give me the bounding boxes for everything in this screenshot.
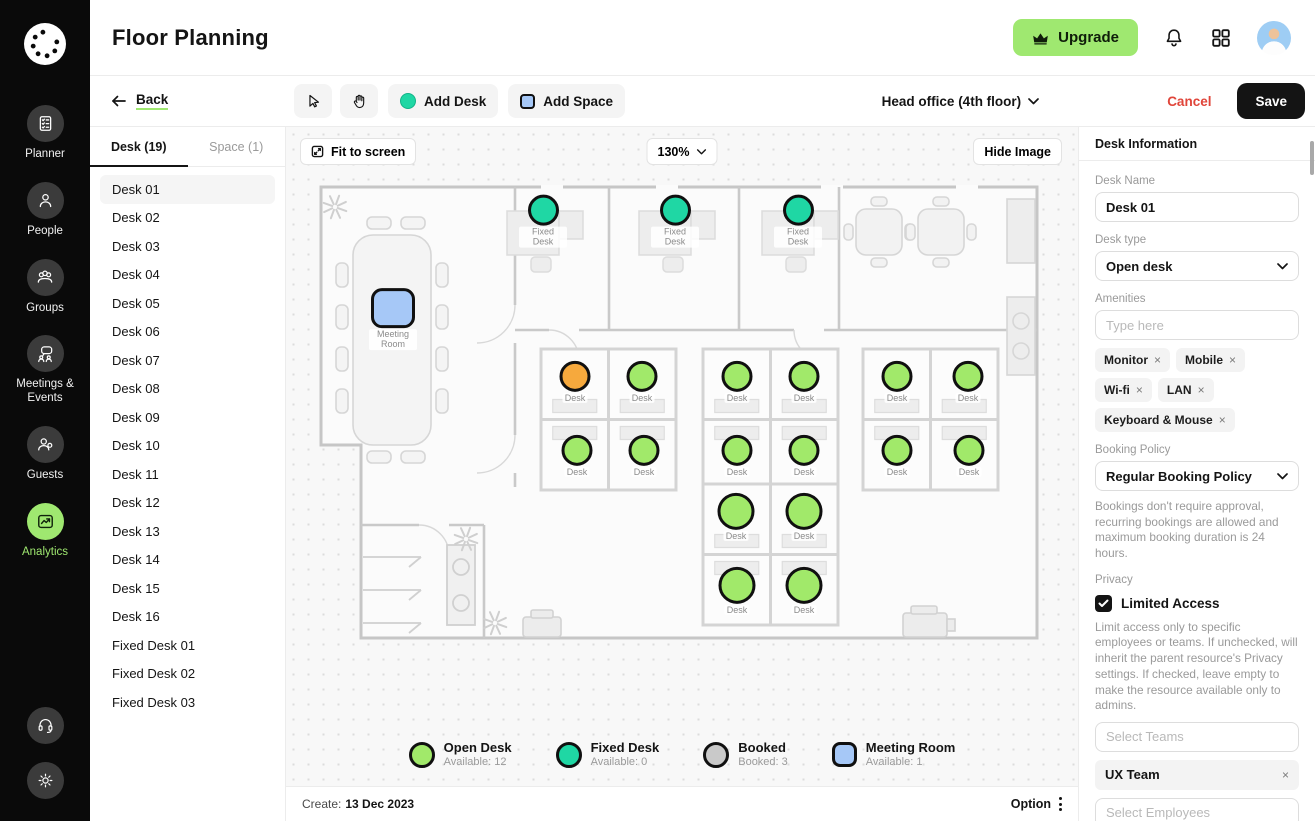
desk-list-item[interactable]: Desk 03 <box>100 232 275 261</box>
legend-swatch <box>409 742 435 768</box>
marker-label: Desk <box>885 393 910 403</box>
desk-list-item[interactable]: Desk 09 <box>100 403 275 432</box>
app-header: Floor Planning Upgrade <box>90 0 1315 76</box>
remove-tag-icon[interactable]: × <box>1229 354 1236 366</box>
desk-list-item[interactable]: Desk 14 <box>100 546 275 575</box>
marker-label: Fixed Desk <box>774 227 822 248</box>
legend: Open DeskAvailable: 12Fixed DeskAvailabl… <box>286 740 1078 769</box>
meeting-desk-marker[interactable]: Meeting Room <box>369 288 417 350</box>
booked-desk-marker[interactable]: Desk <box>786 493 823 541</box>
legend-name: Fixed Desk <box>591 740 660 756</box>
chevron-down-icon <box>1277 263 1288 270</box>
amenity-tag-label: Wi-fi <box>1104 383 1130 397</box>
remove-tag-icon[interactable]: × <box>1154 354 1161 366</box>
marker-dot <box>783 195 814 226</box>
limited-access-checkbox[interactable]: Limited Access <box>1095 595 1299 612</box>
legend-sub: Available: 12 <box>444 756 512 769</box>
sidebar-item-label: Meetings & Events <box>9 378 81 406</box>
open-desk-marker[interactable]: Desk <box>882 361 913 403</box>
sidebar: Planner People Groups <box>0 0 90 821</box>
select-cursor-tool-button[interactable] <box>294 84 332 118</box>
option-menu-button[interactable]: Option <box>1011 797 1062 811</box>
user-avatar[interactable] <box>1257 21 1291 55</box>
desk-name-label: Desk Name <box>1095 175 1299 187</box>
sidebar-nav: Planner People Groups <box>0 95 90 570</box>
amenity-tag-label: Monitor <box>1104 353 1148 367</box>
legend-name: Open Desk <box>444 740 512 756</box>
main-area: Floor Planning Upgrade <box>90 0 1315 821</box>
remove-team-icon[interactable]: × <box>1282 769 1289 781</box>
desk-list-item[interactable]: Desk 12 <box>100 489 275 518</box>
legend-item: Meeting RoomAvailable: 1 <box>832 740 956 769</box>
marker-dot <box>627 361 658 392</box>
fit-to-screen-button[interactable]: Fit to screen <box>300 138 416 165</box>
desk-list-item[interactable]: Desk 16 <box>100 603 275 632</box>
legend-item: Open DeskAvailable: 12 <box>409 740 512 769</box>
booked-avatar <box>786 493 823 530</box>
chevron-down-icon <box>1028 98 1039 105</box>
marker-dot <box>882 361 913 392</box>
legend-name: Meeting Room <box>866 740 956 756</box>
desk-dot-icon <box>400 93 416 109</box>
legend-swatch <box>556 742 582 768</box>
create-date-label: Create: <box>302 797 341 811</box>
booked-desk-marker[interactable]: Desk <box>786 567 823 615</box>
marker-label: Desk <box>632 467 657 477</box>
open-desk-marker[interactable]: Desk <box>722 435 753 477</box>
save-button[interactable]: Save <box>1237 83 1305 119</box>
select-employees-input[interactable] <box>1095 798 1299 821</box>
legend-name: Booked <box>738 740 788 756</box>
zoom-value: 130% <box>658 145 690 159</box>
team-name: UX Team <box>1105 767 1160 782</box>
desk-name-input[interactable] <box>1095 192 1299 222</box>
fixed-desk-marker[interactable]: Fixed Desk <box>774 195 822 248</box>
privacy-label: Privacy <box>1095 574 1299 586</box>
meetings-icon <box>27 335 64 372</box>
amenities-label: Amenities <box>1095 293 1299 305</box>
checkbox-checked-icon <box>1095 595 1112 612</box>
desk-list-item[interactable]: Desk 10 <box>100 432 275 461</box>
marker-layer: Fixed DeskFixed DeskFixed DeskMeeting Ro… <box>286 127 1078 821</box>
booking-policy-label: Booking Policy <box>1095 444 1299 456</box>
marker-label: Meeting Room <box>369 329 417 350</box>
upgrade-button[interactable]: Upgrade <box>1013 19 1138 56</box>
zoom-level-dropdown[interactable]: 130% <box>647 138 718 165</box>
legend-item: BookedBooked: 3 <box>703 740 788 769</box>
page-title: Floor Planning <box>112 25 269 51</box>
open-desk-marker[interactable]: Desk <box>954 435 985 477</box>
space-square-icon <box>520 94 535 109</box>
desk-list-item[interactable]: Desk 15 <box>100 574 275 603</box>
marker-dot <box>371 288 415 328</box>
desk-list: Desk 01Desk 02Desk 03Desk 04Desk 05Desk … <box>90 167 285 725</box>
fixed-desk-marker[interactable]: Fixed Desk <box>651 195 699 248</box>
marker-dot <box>660 195 691 226</box>
legend-item: Fixed DeskAvailable: 0 <box>556 740 660 769</box>
floorplan-canvas[interactable]: Fit to screen 130% Hide Image <box>286 127 1078 821</box>
canvas-footer: Create: 13 Dec 2023 Option <box>286 786 1078 821</box>
desk-type-label: Desk type <box>1095 234 1299 246</box>
amenities-input[interactable] <box>1095 310 1299 340</box>
sidebar-item-label: Guests <box>27 469 63 483</box>
marker-dot <box>953 361 984 392</box>
amenity-tag: Wi-fi× <box>1095 378 1152 402</box>
pan-hand-tool-button[interactable] <box>340 84 378 118</box>
marker-dot <box>722 435 753 466</box>
legend-text: Fixed DeskAvailable: 0 <box>591 740 660 769</box>
desk-list-item[interactable]: Desk 01 <box>100 175 275 204</box>
remove-tag-icon[interactable]: × <box>1136 384 1143 396</box>
add-space-button[interactable]: Add Space <box>508 84 625 118</box>
create-date-value: 13 Dec 2023 <box>345 797 414 811</box>
booked-desk-marker[interactable]: Desk <box>718 493 755 541</box>
desk-list-item[interactable]: Fixed Desk 03 <box>100 688 275 717</box>
sidebar-item-meetings-events[interactable]: Meetings & Events <box>0 325 90 416</box>
panel-body: Desk Name Desk type Open desk Amenities … <box>1079 161 1315 821</box>
add-desk-button[interactable]: Add Desk <box>388 84 498 118</box>
people-icon <box>27 182 64 219</box>
marker-dot <box>722 361 753 392</box>
legend-text: Meeting RoomAvailable: 1 <box>866 740 956 769</box>
header-actions: Upgrade <box>1013 19 1291 56</box>
remove-tag-icon[interactable]: × <box>1219 414 1226 426</box>
sidebar-item-planner[interactable]: Planner <box>0 95 90 172</box>
selected-desk-marker[interactable]: Desk <box>560 361 591 403</box>
notifications-bell-icon[interactable] <box>1163 27 1185 49</box>
desk-list-item[interactable]: Desk 02 <box>100 204 275 233</box>
marker-label: Desk <box>792 467 817 477</box>
open-desk-marker[interactable]: Desk <box>722 361 753 403</box>
chevron-down-icon <box>696 149 706 155</box>
marker-label: Desk <box>725 393 750 403</box>
limited-access-label: Limited Access <box>1121 596 1220 611</box>
marker-label: Desk <box>885 467 910 477</box>
marker-dot <box>560 361 591 392</box>
legend-text: BookedBooked: 3 <box>738 740 788 769</box>
legend-sub: Booked: 3 <box>738 756 788 769</box>
marker-dot <box>629 435 660 466</box>
analytics-icon <box>27 503 64 540</box>
booking-policy-description: Bookings don't require approval, recurri… <box>1095 499 1299 562</box>
app-logo-icon[interactable] <box>23 22 67 71</box>
sidebar-item-label: Planner <box>25 148 65 162</box>
apps-grid-icon[interactable] <box>1210 27 1232 49</box>
marker-label: Desk <box>956 393 981 403</box>
selected-teams: UX Team× <box>1095 760 1299 790</box>
marker-label: Fixed Desk <box>651 227 699 248</box>
sidebar-item-guests[interactable]: Guests <box>0 416 90 493</box>
hide-image-label: Hide Image <box>984 145 1051 159</box>
cancel-button[interactable]: Cancel <box>1167 94 1211 109</box>
marker-label: Desk <box>630 393 655 403</box>
back-label: Back <box>136 92 168 110</box>
desk-type-select[interactable]: Open desk <box>1095 251 1299 281</box>
amenity-tag-label: Mobile <box>1185 353 1223 367</box>
editor-toolbar: Back Add Desk Add Space Head office (4th… <box>90 76 1315 127</box>
add-space-label: Add Space <box>543 94 613 109</box>
open-desk-marker[interactable]: Desk <box>629 435 660 477</box>
marker-dot <box>528 195 559 226</box>
sidebar-item-analytics[interactable]: Analytics <box>0 493 90 570</box>
sidebar-item-label: Groups <box>26 302 64 316</box>
open-desk-marker[interactable]: Desk <box>562 435 593 477</box>
marker-label: Desk <box>792 393 817 403</box>
booking-policy-select[interactable]: Regular Booking Policy <box>1095 461 1299 491</box>
tab-space[interactable]: Space (1) <box>188 127 286 166</box>
open-desk-marker[interactable]: Desk <box>627 361 658 403</box>
amenities-tags: Monitor×Mobile×Wi-fi×LAN×Keyboard & Mous… <box>1095 348 1299 432</box>
open-desk-marker[interactable]: Desk <box>789 435 820 477</box>
marker-label: Desk <box>792 605 817 615</box>
amenity-tag: LAN× <box>1158 378 1214 402</box>
open-desk-marker[interactable]: Desk <box>953 361 984 403</box>
amenity-tag: Keyboard & Mouse× <box>1095 408 1235 432</box>
marker-dot <box>789 435 820 466</box>
fit-to-screen-icon <box>311 145 324 158</box>
desk-list-item[interactable]: Fixed Desk 01 <box>100 631 275 660</box>
desk-list-item[interactable]: Desk 08 <box>100 375 275 404</box>
hide-image-button[interactable]: Hide Image <box>973 138 1062 165</box>
select-teams-input[interactable] <box>1095 722 1299 752</box>
team-row: UX Team× <box>1095 760 1299 790</box>
booked-desk-marker[interactable]: Desk <box>719 567 756 615</box>
legend-sub: Available: 1 <box>866 756 956 769</box>
marker-label: Desk <box>724 531 749 541</box>
option-label: Option <box>1011 797 1051 811</box>
booked-avatar <box>719 567 756 604</box>
desk-list-item[interactable]: Desk 06 <box>100 318 275 347</box>
planner-icon <box>27 105 64 142</box>
legend-swatch <box>832 742 857 767</box>
groups-icon <box>27 259 64 296</box>
desk-list-item[interactable]: Desk 13 <box>100 517 275 546</box>
back-button[interactable]: Back <box>90 92 286 110</box>
marker-dot <box>954 435 985 466</box>
add-desk-label: Add Desk <box>424 94 486 109</box>
desk-list-item[interactable]: Desk 07 <box>100 346 275 375</box>
editor-body: Desk (19) Space (1) Desk 01Desk 02Desk 0… <box>90 127 1315 821</box>
sidebar-bottom <box>27 707 64 799</box>
marker-label: Desk <box>725 605 750 615</box>
marker-dot <box>789 361 820 392</box>
booked-avatar <box>786 567 823 604</box>
booked-avatar <box>718 493 755 530</box>
desk-list-item[interactable]: Desk 04 <box>100 261 275 290</box>
legend-swatch <box>703 742 729 768</box>
amenity-tag: Mobile× <box>1176 348 1245 372</box>
marker-label: Desk <box>957 467 982 477</box>
marker-dot <box>882 435 913 466</box>
support-headset-icon[interactable] <box>27 707 64 744</box>
sidebar-item-groups[interactable]: Groups <box>0 249 90 326</box>
settings-gear-icon[interactable] <box>27 762 64 799</box>
desk-list-item[interactable]: Desk 05 <box>100 289 275 318</box>
sidebar-item-people[interactable]: People <box>0 172 90 249</box>
desk-list-item[interactable]: Desk 11 <box>100 460 275 489</box>
sidebar-item-label: Analytics <box>22 546 68 560</box>
crown-icon <box>1032 30 1049 45</box>
location-dropdown[interactable]: Head office (4th floor) <box>882 94 1040 109</box>
desk-information-panel: Desk Information Desk Name Desk type Ope… <box>1078 127 1315 821</box>
chevron-down-icon <box>1277 473 1288 480</box>
desk-list-panel: Desk (19) Space (1) Desk 01Desk 02Desk 0… <box>90 127 286 821</box>
marker-dot <box>562 435 593 466</box>
amenity-tag-label: Keyboard & Mouse <box>1104 413 1213 427</box>
desk-type-value: Open desk <box>1106 259 1172 274</box>
back-arrow-icon <box>110 93 127 109</box>
booking-policy-value: Regular Booking Policy <box>1106 469 1252 484</box>
privacy-description: Limit access only to specific employees … <box>1095 620 1299 714</box>
fixed-desk-marker[interactable]: Fixed Desk <box>519 195 567 248</box>
desk-list-item[interactable]: Fixed Desk 02 <box>100 660 275 689</box>
fit-to-screen-label: Fit to screen <box>331 145 405 159</box>
marker-label: Fixed Desk <box>519 227 567 248</box>
open-desk-marker[interactable]: Desk <box>882 435 913 477</box>
amenity-tag-label: LAN <box>1167 383 1192 397</box>
location-label: Head office (4th floor) <box>882 94 1022 109</box>
remove-tag-icon[interactable]: × <box>1198 384 1205 396</box>
guests-icon <box>27 426 64 463</box>
app-root: Planner People Groups <box>0 0 1315 821</box>
marker-label: Desk <box>725 467 750 477</box>
panel-scrollbar[interactable] <box>1310 141 1314 175</box>
amenity-tag: Monitor× <box>1095 348 1170 372</box>
marker-label: Desk <box>565 467 590 477</box>
marker-label: Desk <box>563 393 588 403</box>
legend-sub: Available: 0 <box>591 756 660 769</box>
list-tabs: Desk (19) Space (1) <box>90 127 285 167</box>
open-desk-marker[interactable]: Desk <box>789 361 820 403</box>
panel-title: Desk Information <box>1079 127 1315 161</box>
sidebar-item-label: People <box>27 225 63 239</box>
kebab-menu-icon <box>1059 797 1062 811</box>
tab-desk[interactable]: Desk (19) <box>90 127 188 166</box>
marker-label: Desk <box>792 531 817 541</box>
legend-text: Open DeskAvailable: 12 <box>444 740 512 769</box>
upgrade-label: Upgrade <box>1058 29 1119 46</box>
